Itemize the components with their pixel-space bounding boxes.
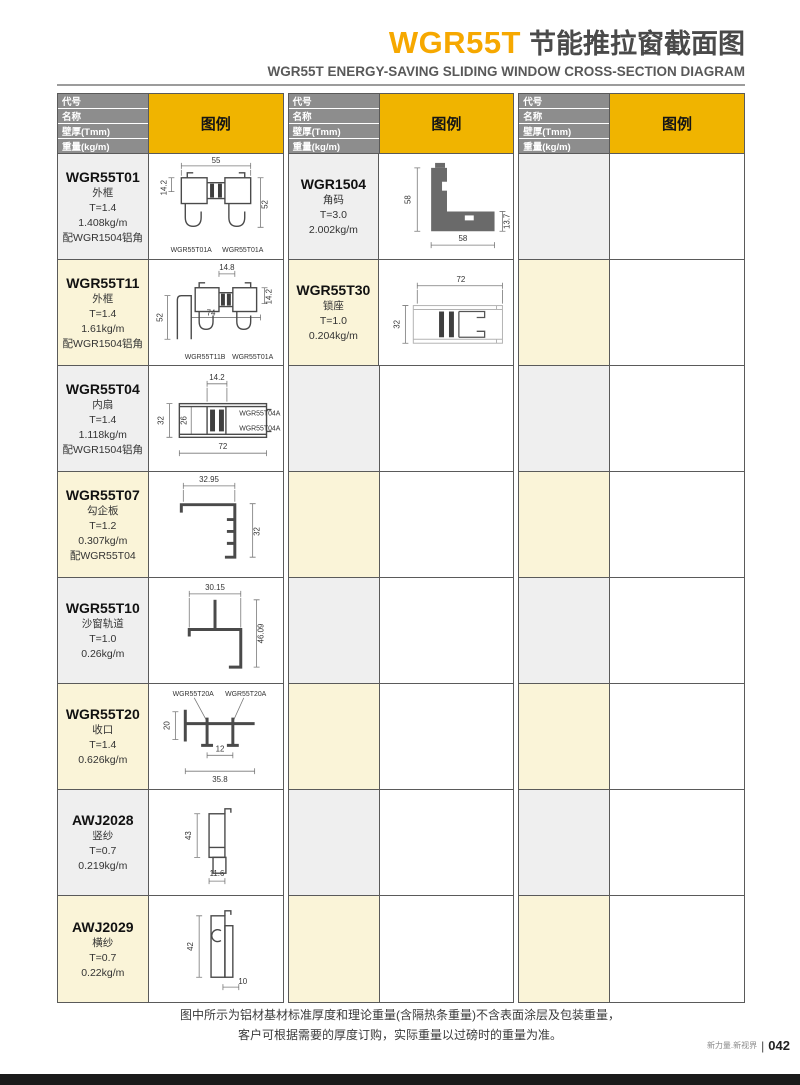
- empty-diagram-cell: [380, 684, 514, 789]
- cross-section-diagram-wgr55t01: 55 14.2 52 WGR55T01A W: [149, 154, 283, 260]
- table-row: WGR55T01 外框 T=1.4 1.408kg/m 配WGR1504铝角 5…: [58, 154, 283, 260]
- empty-diagram-cell: [610, 472, 744, 577]
- profile-info-wgr55t30: WGR55T30 锁座 T=1.0 0.204kg/m: [289, 260, 380, 365]
- empty-diagram-cell: [610, 366, 744, 471]
- part-label: WGR55T04A: [239, 410, 281, 417]
- empty-row: [519, 472, 744, 578]
- profile-code: WGR55T30: [296, 282, 370, 298]
- title-series-code: WGR55T: [389, 25, 521, 60]
- page-title: WGR55T节能推拉窗截面图: [57, 22, 745, 61]
- profile-info-wgr1504: WGR1504 角码 T=3.0 2.002kg/m: [289, 154, 380, 259]
- header-thickness-label: 壁厚(Tmm): [58, 124, 148, 139]
- cross-section-diagram-wgr55t30: 72 32: [379, 260, 513, 366]
- empty-row: [289, 790, 514, 896]
- header-thickness-label: 壁厚(Tmm): [519, 124, 609, 139]
- table-header: 代号 名称 壁厚(Tmm) 重量(kg/m) 图例: [519, 94, 744, 154]
- profile-code: WGR55T04: [66, 381, 140, 397]
- profile-code: AWJ2028: [72, 812, 133, 828]
- dim-label: 58: [404, 194, 413, 203]
- empty-label-cell: [289, 896, 380, 1002]
- empty-diagram-cell: [380, 578, 514, 683]
- bottom-black-bar: [0, 1074, 800, 1085]
- dim-label: 12: [215, 744, 224, 753]
- footer-note-line1: 图中所示为铝材基材标准厚度和理论重量(含隔热条重量)不含表面涂层及包装重量，: [0, 1005, 800, 1025]
- profile-weight: 0.219kg/m: [78, 860, 127, 873]
- dim-label: 55: [211, 155, 220, 164]
- empty-row: [519, 790, 744, 896]
- profile-table-middle: 代号 名称 壁厚(Tmm) 重量(kg/m) 图例 WGR1504 角码 T=3…: [288, 93, 515, 1003]
- dim-label: 32: [252, 527, 261, 536]
- empty-row: [289, 366, 514, 472]
- empty-label-cell: [289, 684, 380, 789]
- dim-label: 14.8: [219, 262, 235, 271]
- table-header: 代号 名称 壁厚(Tmm) 重量(kg/m) 图例: [58, 94, 283, 154]
- header-code-label: 代号: [58, 94, 148, 109]
- profile-weight: 0.22kg/m: [81, 967, 124, 980]
- table-row: WGR55T30 锁座 T=1.0 0.204kg/m 72 32: [289, 260, 514, 366]
- empty-label-cell: [519, 896, 610, 1002]
- empty-diagram-cell: [380, 472, 514, 577]
- dim-label: 26: [179, 415, 188, 424]
- table-header-fields: 代号 名称 壁厚(Tmm) 重量(kg/m): [58, 94, 149, 153]
- empty-diagram-cell: [610, 578, 744, 683]
- profile-name: 竖纱: [92, 830, 113, 843]
- empty-diagram-cell: [610, 260, 744, 365]
- profile-thickness: T=1.2: [89, 520, 116, 533]
- empty-diagram-cell: [380, 896, 514, 1002]
- profile-thickness: T=3.0: [320, 209, 347, 222]
- empty-diagram-cell: [610, 684, 744, 789]
- brand-slogan: 新力量.新视界: [707, 1040, 757, 1051]
- profile-code: AWJ2029: [72, 919, 133, 935]
- empty-label-cell: [289, 472, 380, 577]
- page-header: WGR55T节能推拉窗截面图 WGR55T ENERGY-SAVING SLID…: [57, 0, 745, 79]
- empty-label-cell: [289, 366, 380, 471]
- profile-weight: 0.26kg/m: [81, 648, 124, 661]
- title-english: WGR55T ENERGY-SAVING SLIDING WINDOW CROS…: [57, 64, 745, 79]
- dim-label: 14.2: [209, 372, 224, 381]
- profile-info-wgr55t10: WGR55T10 沙窗轨道 T=1.0 0.26kg/m: [58, 578, 149, 683]
- empty-label-cell: [519, 366, 610, 471]
- diagram-cell: 55 14.2 52 WGR55T01A W: [149, 154, 283, 259]
- dim-label: 30.15: [205, 582, 225, 591]
- part-label: WGR55T01A: [232, 354, 274, 361]
- dim-label: 58: [459, 234, 468, 243]
- diagram-cell: WGR55T20A WGR55T20A 20 12 35.8: [149, 684, 283, 789]
- cross-section-diagram-wgr55t07: 32.95 32: [149, 472, 283, 578]
- profile-thickness: T=0.7: [89, 845, 116, 858]
- table-row: AWJ2029 横纱 T=0.7 0.22kg/m 42 10: [58, 896, 283, 1002]
- header-name-label: 名称: [58, 109, 148, 124]
- footer-notes: 图中所示为铝材基材标准厚度和理论重量(含隔热条重量)不含表面涂层及包装重量， 客…: [0, 1005, 800, 1045]
- profile-thickness: T=1.0: [320, 315, 347, 328]
- profile-name: 外框: [92, 293, 113, 306]
- part-label: WGR55T20A: [172, 690, 214, 697]
- diagram-cell: 14.2 32 26 72 WGR55T04A WGR55T04A: [149, 366, 283, 471]
- profile-thickness: T=1.0: [89, 633, 116, 646]
- profile-code: WGR1504: [301, 176, 366, 192]
- dim-label: 72: [457, 274, 466, 283]
- diagram-cell: 42 10: [149, 896, 283, 1002]
- profile-match: 配WGR1504铝角: [63, 338, 144, 351]
- header-legend-label: 图例: [380, 94, 514, 153]
- part-label: WGR55T20A: [225, 690, 267, 697]
- profile-weight: 2.002kg/m: [309, 224, 358, 237]
- empty-label-cell: [519, 790, 610, 895]
- profile-name: 勾企板: [87, 505, 119, 518]
- diagram-cell: 72 32: [379, 260, 513, 365]
- profile-match: 配WGR1504铝角: [63, 232, 144, 245]
- header-thickness-label: 壁厚(Tmm): [289, 124, 379, 139]
- profile-info-wgr55t07: WGR55T07 勾企板 T=1.2 0.307kg/m 配WGR55T04: [58, 472, 149, 577]
- dim-label: 20: [162, 720, 171, 729]
- dim-label: 72: [218, 442, 227, 451]
- profile-name: 收口: [92, 724, 113, 737]
- profile-table-left: 代号 名称 壁厚(Tmm) 重量(kg/m) 图例 WGR55T01 外框 T=…: [57, 93, 284, 1003]
- empty-row: [289, 578, 514, 684]
- cross-section-diagram-wgr1504: 58 13.7 58: [379, 154, 513, 260]
- header-weight-label: 重量(kg/m): [519, 139, 609, 153]
- empty-row: [519, 578, 744, 684]
- empty-diagram-cell: [610, 154, 744, 259]
- dim-label: 46.09: [256, 622, 265, 642]
- profile-info-wgr55t01: WGR55T01 外框 T=1.4 1.408kg/m 配WGR1504铝角: [58, 154, 149, 259]
- profile-match: 配WGR1504铝角: [63, 444, 144, 457]
- empty-label-cell: [519, 260, 610, 365]
- profile-thickness: T=1.4: [89, 308, 116, 321]
- profile-thickness: T=1.4: [89, 739, 116, 752]
- table-header-fields: 代号 名称 壁厚(Tmm) 重量(kg/m): [519, 94, 610, 153]
- page-number: 042: [768, 1038, 790, 1053]
- profile-weight: 0.307kg/m: [78, 535, 127, 548]
- cross-section-diagram-wgr55t11: 14.8 14.2 52 74: [149, 260, 283, 366]
- header-code-label: 代号: [289, 94, 379, 109]
- header-weight-label: 重量(kg/m): [58, 139, 148, 153]
- dim-label: 42: [186, 942, 195, 951]
- profile-weight: 0.204kg/m: [309, 330, 358, 343]
- profile-code: WGR55T11: [66, 275, 139, 291]
- diagram-cell: 30.15 46.09: [149, 578, 283, 683]
- diagram-cell: 43 11.6: [149, 790, 283, 895]
- profile-match: 配WGR55T04: [70, 550, 136, 563]
- table-row: WGR55T10 沙窗轨道 T=1.0 0.26kg/m 30.15 46.09: [58, 578, 283, 684]
- empty-label-cell: [289, 790, 380, 895]
- profile-thickness: T=1.4: [89, 202, 116, 215]
- profile-code: WGR55T07: [66, 487, 140, 503]
- cross-section-diagram-awj2029: 42 10: [149, 896, 283, 1002]
- profile-weight: 1.61kg/m: [81, 323, 124, 336]
- header-divider: [57, 84, 745, 86]
- profile-name: 角码: [323, 194, 344, 207]
- profile-thickness: T=1.4: [89, 414, 116, 427]
- catalog-page: WGR55T节能推拉窗截面图 WGR55T ENERGY-SAVING SLID…: [0, 0, 800, 1085]
- table-row: AWJ2028 竖纱 T=0.7 0.219kg/m 43 11.6: [58, 790, 283, 896]
- profile-thickness: T=0.7: [89, 952, 116, 965]
- profile-weight: 1.408kg/m: [78, 217, 127, 230]
- part-label: WGR55T04A: [239, 425, 281, 432]
- empty-label-cell: [289, 578, 380, 683]
- cross-section-diagram-wgr55t20: WGR55T20A WGR55T20A 20 12 35.8: [149, 684, 283, 790]
- profile-name: 横纱: [92, 937, 113, 950]
- dim-label: 13.7: [503, 213, 512, 228]
- profile-info-wgr55t04: WGR55T04 内扇 T=1.4 1.118kg/m 配WGR1504铝角: [58, 366, 149, 471]
- dim-label: 10: [238, 977, 247, 986]
- empty-label-cell: [519, 684, 610, 789]
- profile-name: 沙窗轨道: [82, 618, 124, 631]
- title-chinese: 节能推拉窗截面图: [529, 29, 745, 59]
- empty-row: [289, 472, 514, 578]
- part-label: WGR55T01A: [222, 247, 264, 254]
- part-label: WGR55T11B: [184, 354, 225, 361]
- profile-info-wgr55t11: WGR55T11 外框 T=1.4 1.61kg/m 配WGR1504铝角: [58, 260, 149, 365]
- dim-label: 32: [156, 416, 165, 425]
- empty-row: [519, 260, 744, 366]
- profile-name: 内扇: [92, 399, 113, 412]
- profile-weight: 0.626kg/m: [78, 754, 127, 767]
- part-label: WGR55T01A: [170, 247, 212, 254]
- empty-label-cell: [519, 472, 610, 577]
- profile-tables: 代号 名称 壁厚(Tmm) 重量(kg/m) 图例 WGR55T01 外框 T=…: [57, 93, 745, 1003]
- diagram-cell: 58 13.7 58: [379, 154, 513, 259]
- header-legend-label: 图例: [149, 94, 283, 153]
- cross-section-diagram-wgr55t10: 30.15 46.09: [149, 578, 283, 684]
- profile-code: WGR55T20: [66, 706, 140, 722]
- empty-label-cell: [519, 154, 610, 259]
- empty-row: [519, 896, 744, 1002]
- profile-weight: 1.118kg/m: [79, 429, 127, 442]
- empty-diagram-cell: [610, 790, 744, 895]
- empty-diagram-cell: [380, 366, 514, 471]
- brand-separator: |: [761, 1039, 764, 1053]
- profile-name: 锁座: [323, 300, 344, 313]
- dim-label: 14.2: [159, 179, 168, 194]
- table-row: WGR55T04 内扇 T=1.4 1.118kg/m 配WGR1504铝角 1…: [58, 366, 283, 472]
- header-name-label: 名称: [289, 109, 379, 124]
- table-row: WGR55T20 收口 T=1.4 0.626kg/m WGR55T20A WG…: [58, 684, 283, 790]
- empty-row: [519, 154, 744, 260]
- profile-info-wgr55t20: WGR55T20 收口 T=1.4 0.626kg/m: [58, 684, 149, 789]
- dim-label: 43: [184, 830, 193, 839]
- header-code-label: 代号: [519, 94, 609, 109]
- table-header-fields: 代号 名称 壁厚(Tmm) 重量(kg/m): [289, 94, 380, 153]
- empty-diagram-cell: [380, 790, 514, 895]
- profile-name: 外框: [92, 187, 113, 200]
- empty-row: [519, 366, 744, 472]
- profile-table-right: 代号 名称 壁厚(Tmm) 重量(kg/m) 图例: [518, 93, 745, 1003]
- profile-info-awj2028: AWJ2028 竖纱 T=0.7 0.219kg/m: [58, 790, 149, 895]
- cross-section-diagram-awj2028: 43 11.6: [149, 790, 283, 896]
- page-footer-brand: 新力量.新视界 | 042: [707, 1038, 790, 1053]
- empty-diagram-cell: [610, 896, 744, 1002]
- dim-label: 52: [260, 200, 269, 209]
- diagram-cell: 14.8 14.2 52 74: [149, 260, 283, 365]
- footer-note-line2: 客户可根据需要的厚度订购，实际重量以过磅时的重量为准。: [0, 1025, 800, 1045]
- empty-row: [289, 896, 514, 1002]
- header-name-label: 名称: [519, 109, 609, 124]
- diagram-cell: 32.95 32: [149, 472, 283, 577]
- empty-label-cell: [519, 578, 610, 683]
- table-header: 代号 名称 壁厚(Tmm) 重量(kg/m) 图例: [289, 94, 514, 154]
- profile-code: WGR55T01: [66, 169, 140, 185]
- dim-label: 52: [155, 313, 164, 322]
- dim-label: 35.8: [212, 775, 228, 784]
- cross-section-diagram-wgr55t04: 14.2 32 26 72 WGR55T04A WGR55T04A: [149, 366, 283, 472]
- profile-info-awj2029: AWJ2029 横纱 T=0.7 0.22kg/m: [58, 896, 149, 1002]
- profile-code: WGR55T10: [66, 600, 140, 616]
- empty-row: [289, 684, 514, 790]
- dim-label: 32: [393, 319, 402, 328]
- dim-label: 74: [206, 308, 215, 317]
- table-row: WGR55T07 勾企板 T=1.2 0.307kg/m 配WGR55T04 3…: [58, 472, 283, 578]
- table-row: WGR1504 角码 T=3.0 2.002kg/m 58 13.7 58: [289, 154, 514, 260]
- header-weight-label: 重量(kg/m): [289, 139, 379, 153]
- dim-label: 14.2: [264, 288, 273, 303]
- header-legend-label: 图例: [610, 94, 744, 153]
- table-row: WGR55T11 外框 T=1.4 1.61kg/m 配WGR1504铝角 14…: [58, 260, 283, 366]
- empty-row: [519, 684, 744, 790]
- dim-label: 32.95: [199, 474, 219, 483]
